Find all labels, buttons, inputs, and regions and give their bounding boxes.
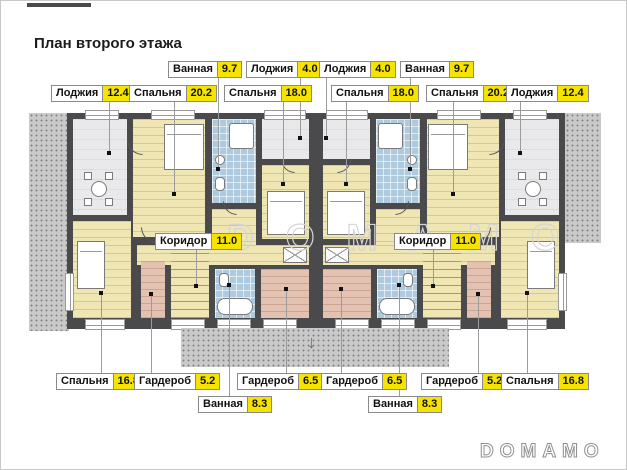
leader-dot <box>339 287 343 291</box>
leader-dot <box>324 136 328 140</box>
room-area: 12.4 <box>558 85 588 102</box>
bed <box>267 191 305 235</box>
room-label-loggia-12-left: Лоджия12.4 <box>51 85 134 102</box>
stairs-right <box>423 253 461 318</box>
leader-line <box>346 101 347 184</box>
room-name: Ванная <box>368 396 418 413</box>
leader-line <box>218 77 219 169</box>
room-label-loggia-4-right: Лоджия4.0 <box>319 61 396 78</box>
leader-dot <box>518 151 522 155</box>
room-name: Лоджия <box>319 61 371 78</box>
leader-dot <box>227 283 231 287</box>
room-area: 8.3 <box>418 396 442 413</box>
leader-dot <box>281 182 285 186</box>
chair-icon <box>84 172 92 180</box>
toilet-icon <box>215 177 225 191</box>
window <box>437 110 481 120</box>
room-label-wardrobe-5-right: Гардероб5.2 <box>421 373 507 390</box>
leader-line <box>174 101 175 194</box>
table-icon <box>525 181 541 197</box>
room-wardrobe-6-right <box>323 269 371 318</box>
toilet-icon <box>403 273 413 287</box>
leader-dot <box>298 136 302 140</box>
leader-line <box>453 101 454 194</box>
room-area: 18.0 <box>389 85 419 102</box>
room-area: 4.0 <box>371 61 395 78</box>
bathtub-icon <box>379 298 415 315</box>
room-name: Коридор <box>155 233 212 250</box>
bed <box>77 241 105 289</box>
room-wardrobe-5-left <box>141 261 165 318</box>
room-label-wardrobe-6-left: Гардероб6.5 <box>237 373 323 390</box>
room-label-bedroom-20-right: Спальня20.2 <box>426 85 514 102</box>
domamo-logo: DOMAMO <box>480 441 605 463</box>
room-wardrobe-6-left <box>261 269 309 318</box>
room-label-corridor-left: Коридор11.0 <box>155 233 242 250</box>
closet-icon <box>325 247 349 263</box>
room-area: 11.0 <box>212 233 242 250</box>
leader-line <box>101 293 102 373</box>
room-loggia-12-left <box>73 119 127 215</box>
leader-line <box>229 285 230 396</box>
leader-dot <box>344 182 348 186</box>
leader-dot <box>172 192 176 196</box>
bathtub-icon <box>217 298 253 315</box>
closet-icon <box>283 247 307 263</box>
room-area: 11.0 <box>451 233 481 250</box>
chair-icon <box>518 172 526 180</box>
leader-dot <box>194 284 198 288</box>
shower-icon <box>378 123 403 149</box>
table-icon <box>91 181 107 197</box>
room-label-loggia-12-right: Лоджия12.4 <box>506 85 589 102</box>
chair-icon <box>105 172 113 180</box>
room-name: Спальня <box>426 85 484 102</box>
room-wardrobe-5-right <box>467 261 491 318</box>
room-name: Спальня <box>501 373 559 390</box>
room-name: Ванная <box>400 61 450 78</box>
leader-dot <box>408 167 412 171</box>
room-name: Гардероб <box>421 373 483 390</box>
leader-dot <box>397 283 401 287</box>
room-label-bathroom-9-left: Ванная9.7 <box>168 61 242 78</box>
roof-hatch-left <box>29 113 69 331</box>
room-label-bedroom-16-left: Спальня16.8 <box>56 373 144 390</box>
leader-line <box>283 101 284 184</box>
room-label-bathroom-8-left: Ванная8.3 <box>198 396 272 413</box>
chair-icon <box>539 172 547 180</box>
room-area: 5.2 <box>196 373 220 390</box>
room-label-bedroom-16-right: Спальня16.8 <box>501 373 589 390</box>
room-name: Лоджия <box>506 85 558 102</box>
plan-title: План второго этажа <box>34 35 182 52</box>
room-label-bedroom-18-right: Спальня18.0 <box>331 85 419 102</box>
leader-line <box>478 294 479 373</box>
room-area: 8.3 <box>248 396 272 413</box>
sink-icon <box>215 155 225 165</box>
leader-dot <box>451 192 455 196</box>
room-name: Гардероб <box>237 373 299 390</box>
room-label-wardrobe-5-left: Гардероб5.2 <box>134 373 220 390</box>
window <box>85 110 119 120</box>
leader-dot <box>284 287 288 291</box>
chair-icon <box>84 198 92 206</box>
leader-dot <box>525 291 529 295</box>
room-label-bedroom-20-left: Спальня20.2 <box>129 85 217 102</box>
room-label-bathroom-9-right: Ванная9.7 <box>400 61 474 78</box>
room-name: Спальня <box>331 85 389 102</box>
room-name: Ванная <box>198 396 248 413</box>
leader-dot <box>99 291 103 295</box>
leader-line <box>109 101 110 153</box>
room-name: Спальня <box>56 373 114 390</box>
room-label-corridor-right: Коридор11.0 <box>394 233 481 250</box>
room-area: 9.7 <box>450 61 474 78</box>
room-name: Коридор <box>394 233 451 250</box>
leader-dot <box>107 151 111 155</box>
room-label-wardrobe-6-right: Гардероб6.5 <box>321 373 407 390</box>
room-name: Гардероб <box>321 373 383 390</box>
room-area: 20.2 <box>187 85 217 102</box>
leader-line <box>520 101 521 153</box>
room-name: Лоджия <box>246 61 298 78</box>
room-area: 18.0 <box>282 85 312 102</box>
down-arrow-icon: ↓ <box>307 332 316 353</box>
room-name: Спальня <box>224 85 282 102</box>
window <box>558 273 567 311</box>
window <box>85 319 125 330</box>
room-area: 6.5 <box>383 373 407 390</box>
floor-plan-page: План второго этажа <box>0 0 627 470</box>
bed <box>164 124 204 170</box>
leader-dot <box>476 292 480 296</box>
room-name: Ванная <box>168 61 218 78</box>
chair-icon <box>105 198 113 206</box>
room-area: 6.5 <box>299 373 323 390</box>
toilet-icon <box>407 177 417 191</box>
leader-line <box>433 249 434 286</box>
room-area: 9.7 <box>218 61 242 78</box>
stairs-left <box>171 253 209 318</box>
shower-icon <box>229 123 254 149</box>
room-loggia-12-right <box>505 119 559 215</box>
room-name: Спальня <box>129 85 187 102</box>
chair-icon <box>539 198 547 206</box>
room-name: Лоджия <box>51 85 103 102</box>
leader-line <box>196 249 197 286</box>
leader-dot <box>149 292 153 296</box>
window <box>65 273 74 311</box>
leader-line <box>341 289 342 373</box>
sink-icon <box>407 155 417 165</box>
leader-dot <box>216 167 220 171</box>
bed <box>428 124 468 170</box>
bed <box>327 191 365 235</box>
leader-dot <box>431 284 435 288</box>
leader-line <box>326 77 327 138</box>
bed <box>527 241 555 289</box>
chair-icon <box>518 198 526 206</box>
room-name: Гардероб <box>134 373 196 390</box>
room-area: 16.8 <box>559 373 589 390</box>
window <box>326 110 368 120</box>
window <box>151 110 195 120</box>
room-label-loggia-4-left: Лоджия4.0 <box>246 61 323 78</box>
room-label-bedroom-18-left: Спальня18.0 <box>224 85 312 102</box>
room-label-bathroom-8-right: Ванная8.3 <box>368 396 442 413</box>
leader-line <box>286 289 287 373</box>
leader-line <box>527 293 528 373</box>
leader-line <box>151 294 152 373</box>
window <box>513 110 547 120</box>
dimension-line-artifact <box>27 3 91 7</box>
